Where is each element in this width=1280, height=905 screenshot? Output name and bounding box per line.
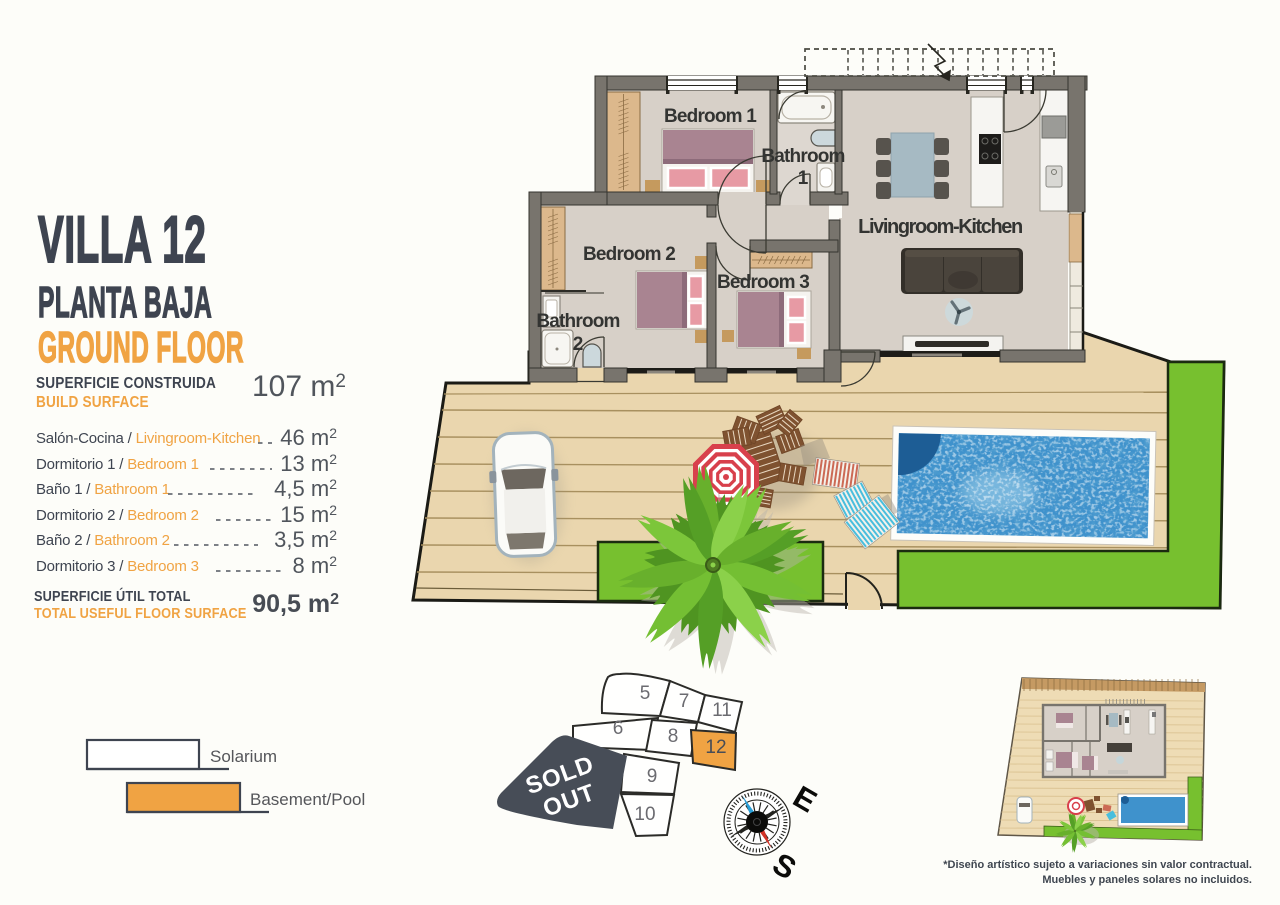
svg-text:BUILD SURFACE: BUILD SURFACE xyxy=(36,394,149,411)
svg-text:Dormitorio 1 / Bedroom 1: Dormitorio 1 / Bedroom 1 xyxy=(36,456,199,473)
svg-text:1: 1 xyxy=(798,168,809,189)
svg-text:10: 10 xyxy=(634,804,655,825)
svg-text:6: 6 xyxy=(613,718,624,739)
svg-text:2: 2 xyxy=(573,334,584,355)
svg-text:Dormitorio 3 / Bedroom 3: Dormitorio 3 / Bedroom 3 xyxy=(36,558,199,575)
svg-text:46 m2: 46 m2 xyxy=(280,425,337,450)
svg-text:11: 11 xyxy=(712,700,732,721)
svg-text:Bedroom 2: Bedroom 2 xyxy=(583,244,675,265)
svg-text:Baño 1 / Bathroom 1: Baño 1 / Bathroom 1 xyxy=(36,481,170,498)
svg-text:Bedroom 1: Bedroom 1 xyxy=(664,106,757,127)
svg-text:7: 7 xyxy=(679,691,690,712)
svg-text:5: 5 xyxy=(640,683,651,704)
svg-text:3,5 m2: 3,5 m2 xyxy=(274,527,337,552)
svg-text:Dormitorio 2 / Bedroom 2: Dormitorio 2 / Bedroom 2 xyxy=(36,507,199,524)
svg-text:*Diseño artístico sujeto a var: *Diseño artístico sujeto a variaciones s… xyxy=(943,859,1252,871)
svg-text:107 m2: 107 m2 xyxy=(252,370,346,403)
svg-text:Bathroom: Bathroom xyxy=(536,311,619,332)
svg-text:Bathroom: Bathroom xyxy=(761,146,844,167)
svg-text:GROUND FLOOR: GROUND FLOOR xyxy=(38,323,244,372)
svg-text:TOTAL USEFUL FLOOR SURFACE: TOTAL USEFUL FLOOR SURFACE xyxy=(34,605,247,621)
svg-text:Bedroom 3: Bedroom 3 xyxy=(717,272,809,293)
svg-text:Livingroom-Kitchen: Livingroom-Kitchen xyxy=(858,216,1022,238)
svg-text:9: 9 xyxy=(647,766,658,787)
svg-text:Basement/Pool: Basement/Pool xyxy=(250,790,365,809)
svg-text:4,5 m2: 4,5 m2 xyxy=(274,476,337,501)
svg-text:Solarium: Solarium xyxy=(210,747,277,766)
svg-text:SUPERFICIE ÚTIL TOTAL: SUPERFICIE ÚTIL TOTAL xyxy=(34,588,191,604)
svg-text:90,5 m2: 90,5 m2 xyxy=(252,590,339,618)
svg-text:12: 12 xyxy=(705,737,726,758)
svg-text:VILLA 12: VILLA 12 xyxy=(38,203,206,276)
svg-text:8: 8 xyxy=(668,726,679,747)
svg-text:SUPERFICIE CONSTRUIDA: SUPERFICIE CONSTRUIDA xyxy=(36,375,216,392)
svg-text:Baño 2 / Bathroom 2: Baño 2 / Bathroom 2 xyxy=(36,532,170,549)
svg-text:PLANTA BAJA: PLANTA BAJA xyxy=(38,278,212,327)
svg-text:Muebles y paneles solares no i: Muebles y paneles solares no incluidos. xyxy=(1042,874,1252,886)
svg-text:13 m2: 13 m2 xyxy=(280,451,337,476)
svg-text:Salón-Cocina / Livingroom-Kitc: Salón-Cocina / Livingroom-Kitchen xyxy=(36,430,260,447)
svg-text:15 m2: 15 m2 xyxy=(280,502,337,527)
